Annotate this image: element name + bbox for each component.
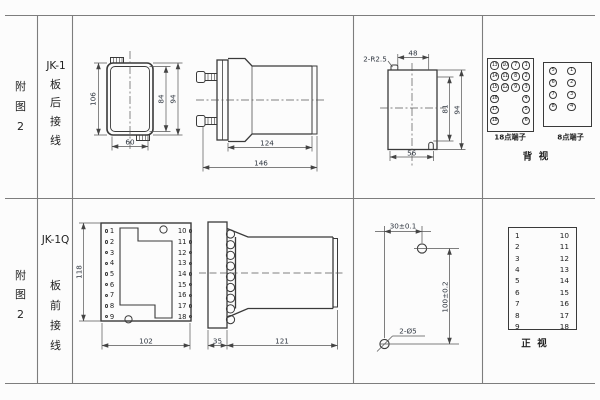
cutout-radius-label: 2-R2.5 — [363, 55, 387, 62]
jk1q-front-view-drawing — [79, 223, 191, 350]
terminal-circle: 6 — [549, 79, 557, 87]
terminal-circle: 7 — [511, 61, 519, 69]
t8-label: 8点端子 — [557, 133, 584, 140]
terminal-dot-icon — [189, 262, 192, 265]
t18-col4: 123456 — [522, 61, 530, 125]
table-cell: 10 — [547, 230, 569, 241]
drill-pitch-x-dim: 30±0.1 — [390, 222, 417, 229]
terminal-circle: 8 — [511, 72, 519, 80]
jk1-front-height-inner-dim: 84 — [157, 94, 164, 103]
cutout-top-dim: 48 — [408, 49, 417, 56]
t18-col1: 131415161718 — [490, 61, 498, 125]
table-cell: 5 — [515, 275, 520, 286]
jk1-side-total-dim: 146 — [254, 159, 268, 166]
terminal-dot-icon — [105, 304, 108, 307]
terminal-row: 15 — [177, 279, 192, 290]
jk1-side-body-dim: 124 — [260, 139, 274, 146]
cutout-inner-height-dim: 81 — [441, 104, 448, 113]
terminal-row: 13 — [177, 258, 192, 269]
drill-pitch-y-dim: 100±0.2 — [441, 281, 448, 312]
row2-model-label: JK-1Q — [42, 234, 70, 246]
catalog-page: 附 图 2 JK-1 板 后 接 线 附 图 2 JK-1Q 板 前 接 线 1… — [0, 0, 600, 400]
table-cell: 9 — [515, 321, 520, 332]
terminal-circle: 6 — [522, 117, 530, 125]
cutout-bottom-dim: 56 — [407, 149, 416, 156]
table-cell: 4 — [515, 264, 520, 275]
terminal-dot-icon — [189, 315, 192, 318]
jk1q-front-left-terminals: 123456789 — [105, 226, 115, 322]
terminal-circle: 4 — [567, 103, 575, 111]
table-cell: 16 — [547, 298, 569, 309]
terminal-circle: 14 — [490, 72, 498, 80]
t8-colL: 5678 — [549, 67, 557, 111]
terminal-circle: 15 — [490, 83, 498, 91]
terminal-row: 7 — [105, 290, 115, 301]
drill-holes-label: 2-Ø5 — [399, 327, 416, 334]
terminal-row: 16 — [177, 290, 192, 301]
terminal-dot-icon — [189, 240, 192, 243]
terminal-row: 8 — [105, 301, 115, 312]
terminal-circle: 1 — [567, 67, 575, 75]
table-cell: 8 — [515, 310, 520, 321]
terminal-circle: 7 — [549, 91, 557, 99]
table-cell: 15 — [547, 287, 569, 298]
terminal-row: 9 — [105, 311, 115, 322]
terminal-row: 14 — [177, 269, 192, 280]
terminal-row: 5 — [105, 269, 115, 280]
jk1q-side-view-drawing — [199, 222, 346, 350]
terminal-number-table: 123456789 101112131415161718 — [508, 227, 577, 330]
table-cell: 11 — [547, 241, 569, 252]
terminal-dot-icon — [105, 229, 108, 232]
terminal-circle: 1 — [522, 61, 530, 69]
t18-label: 18点端子 — [494, 133, 526, 140]
terminal-circle: 5 — [549, 67, 557, 75]
jk1-side-view-drawing — [196, 59, 326, 172]
terminal-circle: 3 — [522, 83, 530, 91]
terminal-dot-icon — [105, 272, 108, 275]
terminal-circle: 3 — [567, 91, 575, 99]
terminal-row: 4 — [105, 258, 115, 269]
jk1q-side-body-dim: 121 — [275, 337, 289, 344]
terminal-circle: 12 — [501, 83, 509, 91]
terminal-circle: 16 — [490, 95, 498, 103]
table-cell: 14 — [547, 275, 569, 286]
table-left-column: 123456789 — [515, 230, 520, 333]
terminal-circle: 17 — [490, 106, 498, 114]
terminal-dot-icon — [189, 229, 192, 232]
jk1-front-height-outer-dim: 106 — [89, 92, 96, 106]
jk1q-front-width-dim: 102 — [139, 337, 153, 344]
table-cell: 7 — [515, 298, 520, 309]
terminal-row: 2 — [105, 236, 115, 247]
row2-wiring-label: 板 前 接 线 — [50, 276, 61, 356]
jk1q-side-flange-dim: 35 — [213, 337, 222, 344]
terminal-dot-icon — [105, 315, 108, 318]
terminal-circle: 4 — [522, 95, 530, 103]
terminal-circle: 9 — [511, 83, 519, 91]
t18-col2: 101112 — [501, 61, 509, 92]
table-cell: 3 — [515, 252, 520, 263]
terminal-dot-icon — [189, 283, 192, 286]
terminal-dot-icon — [105, 262, 108, 265]
terminal-dot-icon — [105, 240, 108, 243]
table-cell: 1 — [515, 230, 520, 241]
terminal-row: 12 — [177, 247, 192, 258]
terminal-dot-icon — [105, 294, 108, 297]
table-right-column: 101112131415161718 — [547, 230, 569, 333]
terminal-block-18pt: 131415161718 101112 789 123456 — [487, 58, 534, 132]
rear-view-label: 背 视 — [523, 152, 549, 162]
terminal-dot-icon — [105, 251, 108, 254]
terminal-row: 1 — [105, 226, 115, 237]
row1-model-label: JK-1 — [46, 60, 65, 72]
jk1q-front-right-terminals: 101112131415161718 — [177, 226, 192, 322]
table-cell: 2 — [515, 241, 520, 252]
terminal-dot-icon — [189, 272, 192, 275]
terminal-dot-icon — [189, 251, 192, 254]
terminal-row: 11 — [177, 236, 192, 247]
row2-figure-label: 附 图 2 — [15, 266, 26, 325]
terminal-row: 17 — [177, 301, 192, 312]
table-cell: 17 — [547, 310, 569, 321]
row1-wiring-label: 板 后 接 线 — [50, 76, 61, 151]
table-cell: 6 — [515, 287, 520, 298]
jk1-front-width-dim: 60 — [125, 138, 134, 145]
terminal-circle: 13 — [490, 61, 498, 69]
terminal-circle: 18 — [490, 117, 498, 125]
terminal-dot-icon — [189, 304, 192, 307]
terminal-dot-icon — [105, 283, 108, 286]
terminal-row: 6 — [105, 279, 115, 290]
terminal-circle: 8 — [549, 103, 557, 111]
terminal-circle: 10 — [501, 61, 509, 69]
table-cell: 18 — [547, 321, 569, 332]
t8-colR: 1234 — [567, 67, 575, 111]
front-view-label: 正 视 — [521, 339, 547, 349]
table-cell: 13 — [547, 264, 569, 275]
terminal-dot-icon — [189, 294, 192, 297]
t18-col3: 789 — [511, 61, 519, 92]
row1-figure-label: 附 图 2 — [15, 77, 26, 137]
terminal-circle: 11 — [501, 72, 509, 80]
terminal-row: 18 — [177, 311, 192, 322]
jk1q-front-height-dim: 118 — [75, 265, 82, 279]
terminal-row: 10 — [177, 226, 192, 237]
cutout-outer-height-dim: 94 — [453, 105, 460, 114]
terminal-row: 3 — [105, 247, 115, 258]
jk1-front-height-mid-dim: 94 — [169, 94, 176, 103]
terminal-circle: 2 — [522, 72, 530, 80]
table-cell: 12 — [547, 252, 569, 263]
terminal-circle: 5 — [522, 106, 530, 114]
terminal-circle: 2 — [567, 79, 575, 87]
terminal-block-8pt: 5678 1234 — [543, 62, 592, 127]
